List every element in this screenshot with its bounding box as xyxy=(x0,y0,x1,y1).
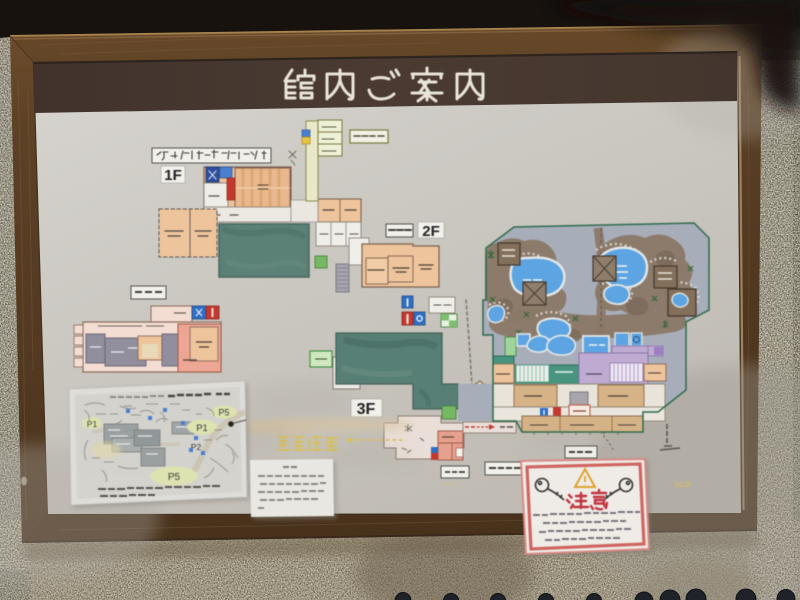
svg-text:1F: 1F xyxy=(164,167,182,184)
svg-text:3F: 3F xyxy=(357,401,376,418)
svg-text:P1: P1 xyxy=(196,423,208,434)
svg-text:P5: P5 xyxy=(218,408,229,418)
svg-text:2F: 2F xyxy=(422,223,440,240)
svg-text:P5: P5 xyxy=(168,472,181,483)
